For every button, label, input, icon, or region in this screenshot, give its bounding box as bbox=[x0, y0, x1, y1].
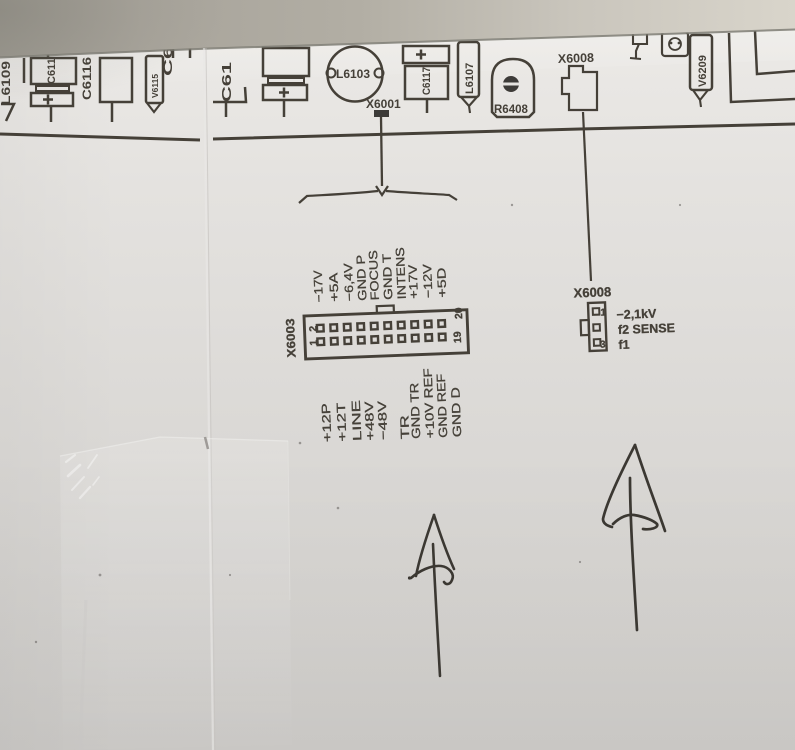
svg-text:X6008: X6008 bbox=[573, 284, 611, 300]
svg-text:+17V: +17V bbox=[406, 265, 421, 300]
svg-text:3: 3 bbox=[600, 339, 606, 350]
svg-text:f1: f1 bbox=[618, 338, 630, 352]
svg-text:L6103: L6103 bbox=[336, 67, 370, 81]
svg-text:−2,1kV: −2,1kV bbox=[616, 307, 657, 322]
svg-text:1: 1 bbox=[600, 307, 606, 318]
svg-text:GND REF: GND REF bbox=[434, 374, 450, 438]
svg-text:−12V: −12V bbox=[420, 264, 435, 299]
svg-text:V6209: V6209 bbox=[697, 55, 709, 87]
svg-text:+12T: +12T bbox=[334, 401, 350, 441]
svg-text:19: 19 bbox=[452, 331, 464, 343]
svg-text:−17V: −17V bbox=[311, 270, 326, 303]
svg-text:f2 SENSE: f2 SENSE bbox=[618, 321, 675, 337]
svg-text:20: 20 bbox=[453, 307, 465, 319]
svg-text:C61: C61 bbox=[220, 62, 234, 102]
svg-text:+5D: +5D bbox=[434, 267, 449, 298]
svg-text:+12P: +12P bbox=[319, 403, 334, 443]
svg-text:C6117: C6117 bbox=[421, 67, 433, 95]
svg-text:L6107: L6107 bbox=[464, 63, 476, 94]
svg-text:X6008: X6008 bbox=[558, 51, 595, 66]
svg-text:2: 2 bbox=[307, 325, 319, 331]
svg-text:GND D: GND D bbox=[448, 387, 464, 438]
svg-text:−48V: −48V bbox=[375, 401, 390, 441]
svg-text:+5A: +5A bbox=[326, 273, 341, 303]
svg-text:1: 1 bbox=[308, 339, 320, 345]
svg-text:X6003: X6003 bbox=[283, 318, 299, 358]
svg-text:R6408: R6408 bbox=[494, 104, 528, 116]
svg-text:X6001: X6001 bbox=[366, 97, 401, 111]
